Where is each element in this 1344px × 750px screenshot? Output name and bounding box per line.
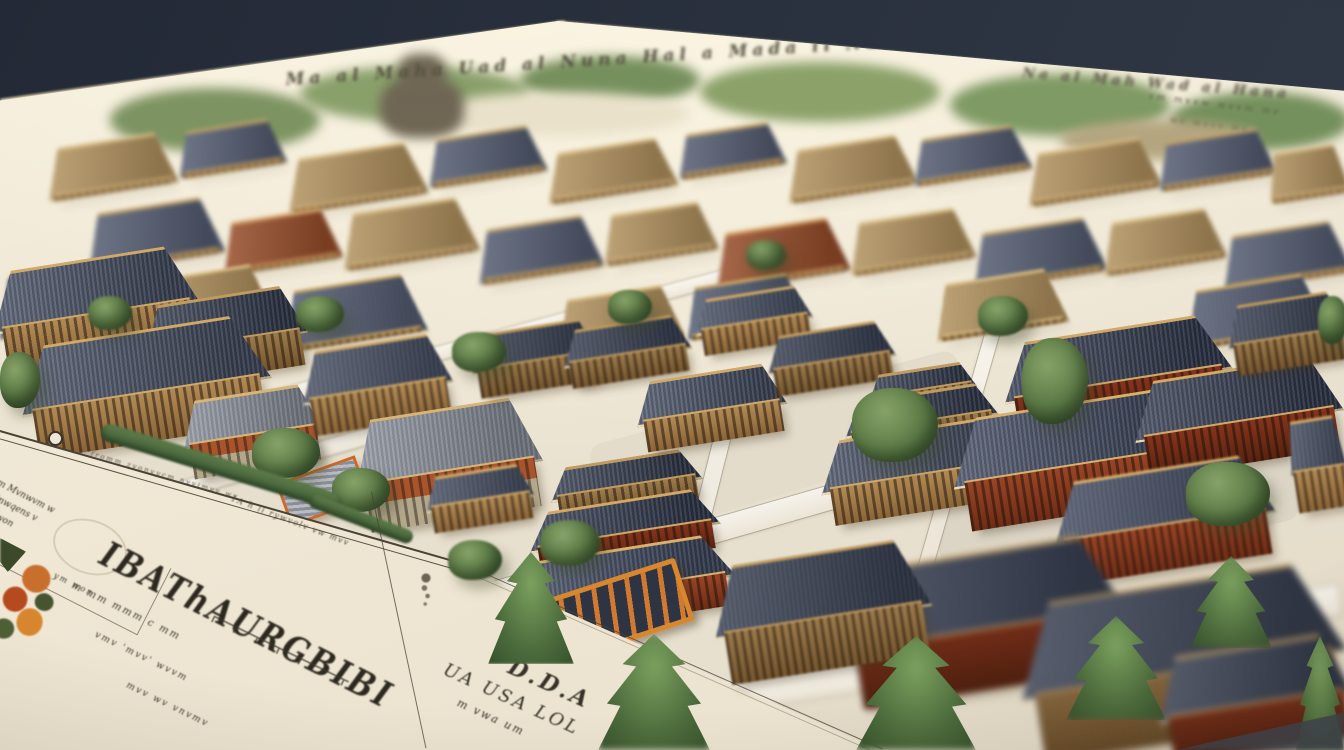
tree: [540, 520, 600, 566]
tree: [448, 540, 502, 580]
conifer: [598, 634, 710, 750]
conifer: [488, 552, 574, 664]
map-paper-sheet: Ma al Maha Uad al Nuna Hal a Mada il Nah…: [0, 0, 1344, 750]
photo-of-miniature-city-map: Ma al Maha Uad al Nuna Hal a Mada il Nah…: [0, 0, 1344, 750]
foreground-buildings: [0, 0, 1344, 750]
